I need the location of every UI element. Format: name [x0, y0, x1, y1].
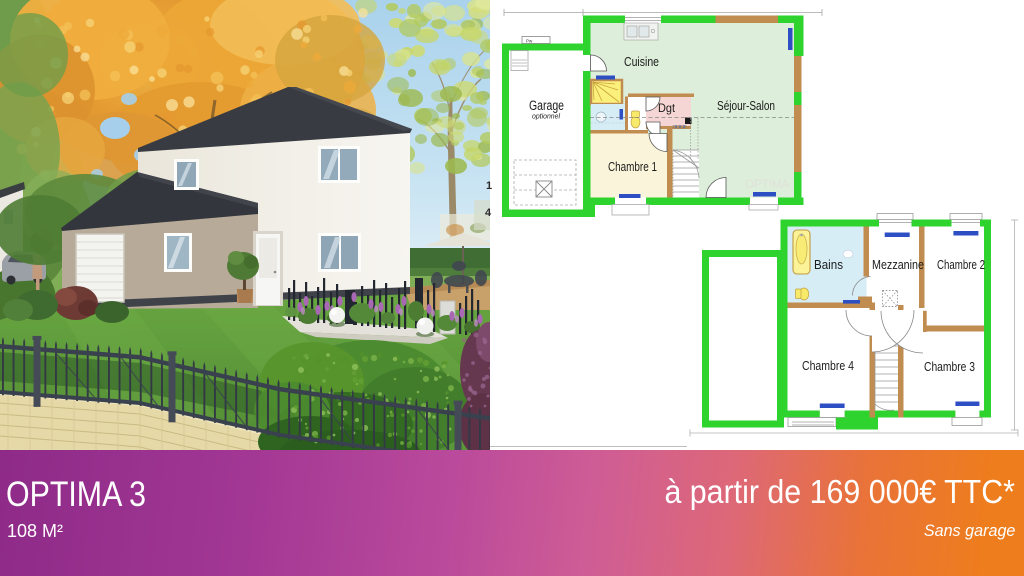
svg-text:Chambre 4: Chambre 4	[802, 359, 854, 373]
svg-text:Chambre 1: Chambre 1	[608, 160, 657, 174]
svg-text:optionnel: optionnel	[532, 114, 560, 121]
svg-text:Chambre 2: Chambre 2	[937, 258, 985, 272]
svg-text:Garage: Garage	[529, 98, 564, 113]
svg-text:Chambre 3: Chambre 3	[924, 360, 975, 374]
svg-text:Dgt: Dgt	[658, 101, 676, 115]
svg-text:Séjour-Salon: Séjour-Salon	[717, 99, 775, 113]
svg-text:Pw: Pw	[526, 38, 533, 43]
svg-text:Bains: Bains	[814, 258, 843, 272]
svg-text:Cuisine: Cuisine	[624, 55, 659, 69]
svg-text:OPTIMA: OPTIMA	[745, 179, 789, 191]
svg-text:Mezzanine: Mezzanine	[872, 258, 924, 272]
